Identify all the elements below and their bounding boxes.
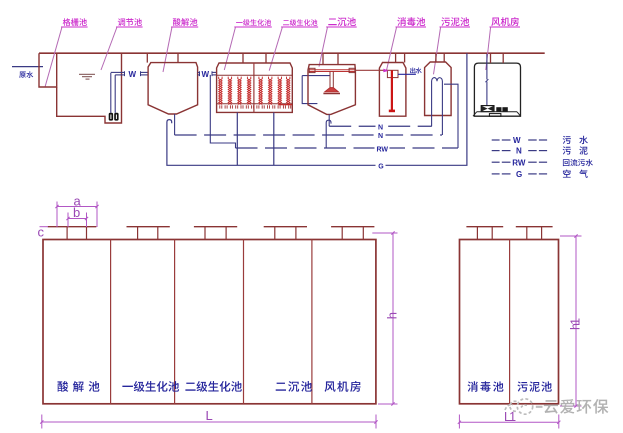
- svg-text:G: G: [516, 170, 522, 179]
- svg-text:c: c: [38, 225, 45, 240]
- svg-text:W: W: [513, 136, 521, 145]
- svg-text:N: N: [516, 147, 522, 156]
- svg-text:h: h: [385, 312, 400, 319]
- svg-text:RW: RW: [512, 158, 526, 167]
- svg-text:W: W: [202, 70, 210, 79]
- svg-text:W: W: [129, 70, 137, 79]
- svg-text:L: L: [206, 408, 213, 423]
- svg-text:b: b: [73, 205, 80, 220]
- svg-text:RW: RW: [377, 146, 389, 153]
- svg-text:N: N: [378, 133, 383, 140]
- svg-text:G: G: [378, 164, 384, 171]
- svg-text:N: N: [378, 124, 383, 131]
